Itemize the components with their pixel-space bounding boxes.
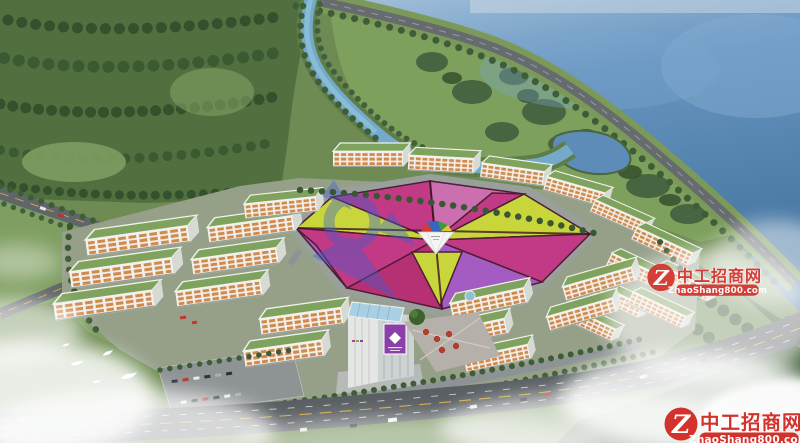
watermark-corner: Z 中工招商网 ZhaoShang800.com [665,408,800,443]
brand-url: ZhaoShang800.com [668,286,767,296]
svg-text:Z: Z [671,410,691,439]
fountain [465,291,475,301]
factory-building [408,147,481,174]
brand-name: 中工招商网 [677,267,762,286]
brand-name: 中工招商网 [700,411,800,434]
forest-hill [0,0,312,203]
factory-building [333,143,411,167]
horizon-haze [470,0,800,13]
industrial-park-scene: Z 中工招商网 ZhaoShang800.com Z 中工招商网 ZhaoSha… [0,0,800,443]
aerial-rendering: Z 中工招商网 ZhaoShang800.com Z 中工招商网 ZhaoSha… [0,0,800,443]
brand-url: ZhaoShang800.com [689,434,800,443]
